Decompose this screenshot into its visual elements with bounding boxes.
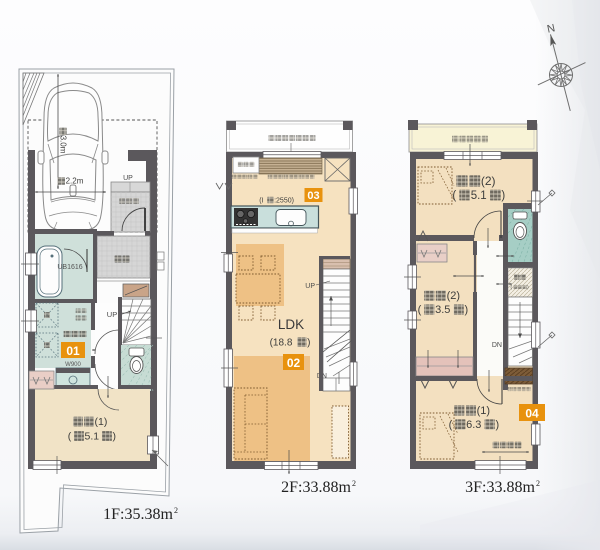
svg-text:): ) bbox=[113, 431, 117, 443]
svg-text:5.1: 5.1 bbox=[85, 431, 100, 443]
svg-text:UB1616: UB1616 bbox=[57, 264, 82, 271]
svg-text:01: 01 bbox=[66, 344, 80, 358]
svg-text:2.2m: 2.2m bbox=[66, 177, 84, 186]
svg-text:(: ( bbox=[68, 431, 72, 443]
svg-text:5.1: 5.1 bbox=[471, 190, 487, 202]
svg-text:2: 2 bbox=[536, 479, 540, 488]
svg-text:(: ( bbox=[418, 304, 422, 316]
svg-text:DN: DN bbox=[492, 342, 502, 349]
svg-text:LDK: LDK bbox=[278, 317, 304, 332]
svg-text:UP: UP bbox=[107, 310, 117, 319]
svg-text:1F:35.38m: 1F:35.38m bbox=[103, 506, 173, 523]
svg-text:3.0m: 3.0m bbox=[58, 136, 67, 154]
svg-text:2F:33.88m: 2F:33.88m bbox=[281, 479, 351, 496]
svg-text:6.3: 6.3 bbox=[466, 419, 481, 431]
svg-text:(18.8: (18.8 bbox=[270, 337, 293, 348]
svg-text:): ) bbox=[465, 304, 469, 316]
svg-text:(I: (I bbox=[259, 197, 263, 204]
svg-text:2: 2 bbox=[174, 506, 178, 515]
svg-text:): ) bbox=[307, 337, 310, 348]
svg-text:02: 02 bbox=[287, 356, 301, 370]
svg-text:): ) bbox=[501, 190, 505, 202]
svg-text:3.5: 3.5 bbox=[435, 304, 450, 316]
svg-text:(1): (1) bbox=[95, 416, 108, 428]
svg-text:3F:33.88m: 3F:33.88m bbox=[465, 479, 535, 496]
svg-text:(2): (2) bbox=[481, 174, 496, 188]
svg-text:UP: UP bbox=[123, 175, 133, 182]
svg-text:(: ( bbox=[452, 190, 456, 202]
svg-text::2550): :2550) bbox=[274, 197, 294, 204]
svg-text:(1): (1) bbox=[477, 405, 490, 417]
svg-text:04: 04 bbox=[525, 407, 539, 421]
svg-text:W900: W900 bbox=[65, 362, 81, 368]
svg-text:03: 03 bbox=[307, 190, 319, 202]
svg-text:UP: UP bbox=[305, 283, 315, 290]
svg-text:): ) bbox=[496, 419, 500, 431]
svg-text:(2): (2) bbox=[447, 290, 460, 302]
svg-text:2: 2 bbox=[352, 479, 356, 488]
svg-text:(: ( bbox=[449, 419, 453, 431]
